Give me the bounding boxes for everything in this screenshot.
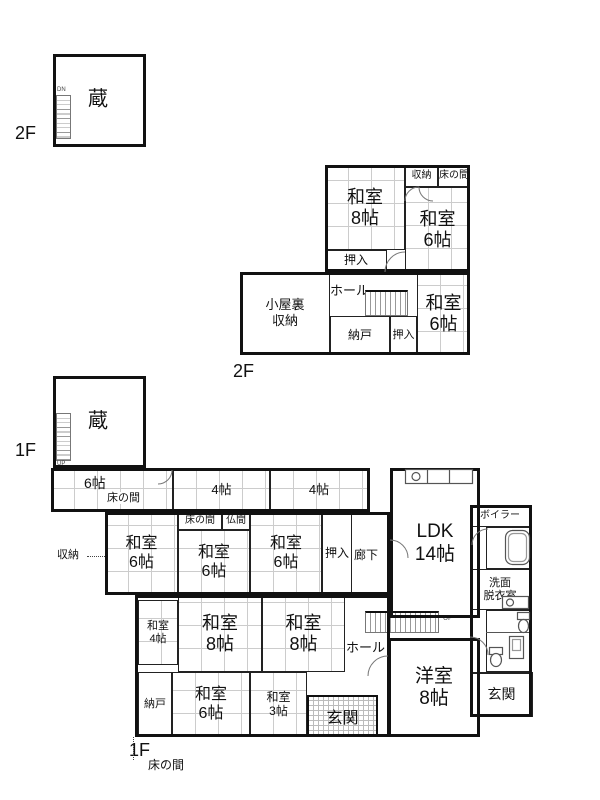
room-2f-oshiire-bottom: 押入 <box>390 316 417 355</box>
room-1f-tokonoma-mid: 床の間 <box>178 512 222 530</box>
label-2f-hall: ホール <box>330 284 369 298</box>
room-2f-tokonoma: 床の間 <box>438 165 470 187</box>
room-1f-genkan-side: 玄関 <box>470 672 533 717</box>
room-1f-yoshitsu-8: 洋室 8帖 <box>388 638 480 737</box>
room-2f-washitsu-8: 和室 8帖 <box>325 165 405 250</box>
room-1f-washitsu-6-a: 和室 6帖 <box>105 512 178 595</box>
1f-stairs <box>365 611 439 633</box>
label-1f-shuno: 収納 <box>57 549 79 561</box>
room-2f-washitsu-6-top: 和室 6帖 <box>405 187 470 272</box>
door-arc <box>368 656 388 676</box>
room-1f-4jo-b: 4帖 <box>270 468 368 512</box>
room-1f-oshiire: 押入 <box>322 512 352 595</box>
label-1f-rouka: 廊下 <box>354 549 378 562</box>
room-1f-senmen: 洗面 脱衣室 <box>470 569 530 610</box>
room-1f-butsuma: 仏間 <box>222 512 250 530</box>
room-1f-washitsu-6-b: 和室 6帖 <box>178 530 250 595</box>
floor-label-1f-side: 1F <box>15 441 36 461</box>
room-1f-genkan-main: 玄関 <box>307 695 378 737</box>
toilet-divider <box>486 632 530 633</box>
room-1f-washitsu-8-a: 和室 8帖 <box>178 595 262 672</box>
label-1f-stair-dir: UP <box>443 615 453 623</box>
room-1f-nando: 納戸 <box>138 672 172 737</box>
leader-shuno <box>87 556 105 557</box>
leader-tokonoma-bottom <box>133 737 134 760</box>
1f-storage-stairs <box>56 413 71 461</box>
1f-storage-room-label: 蔵 <box>88 410 108 432</box>
room-2f-oshiire-top: 押入 <box>325 250 387 272</box>
room-1f-ldk: LDK 14帖 <box>390 468 480 618</box>
2f-storage-room-label: 蔵 <box>88 88 108 110</box>
room-1f-4jo-a: 4帖 <box>173 468 270 512</box>
room-1f-washitsu-8-b: 和室 8帖 <box>262 595 345 672</box>
room-1f-washitsu-3: 和室 3帖 <box>250 672 307 737</box>
room-1f-boiler: ボイラー <box>470 505 530 527</box>
room-2f-koyaura-shuno: 小屋裏 収納 <box>240 272 330 355</box>
label-1f-6jo: 6帖 <box>84 476 106 491</box>
label-1f-tokonoma-bottom: 床の間 <box>148 759 184 772</box>
room-2f-shuno: 収納 <box>405 165 438 187</box>
room-1f-washitsu-6-d: 和室 6帖 <box>172 672 250 737</box>
2f-storage-stairs <box>56 95 71 139</box>
floor-plan-canvas: DN 蔵 2F 和室 8帖 収納 床の間 和室 6帖 押入 小屋裏 収納 ホール… <box>0 0 600 800</box>
label-1f-tokonoma-top: 床の間 <box>106 492 141 504</box>
room-2f-washitsu-6-bottom: 和室 6帖 <box>417 272 470 355</box>
floor-label-2f-side: 2F <box>15 124 36 144</box>
room-1f-6jo <box>51 468 173 512</box>
room-1f-washitsu-6-c: 和室 6帖 <box>250 512 322 595</box>
room-1f-bath <box>486 527 530 569</box>
room-1f-toilet <box>486 610 530 672</box>
floor-label-2f-bottom: 2F <box>233 362 254 382</box>
room-2f-nando: 納戸 <box>330 316 390 355</box>
label-1f-hall: ホール <box>346 641 385 655</box>
door-arc <box>385 252 405 272</box>
1f-storage-stair-label: UP <box>57 461 65 468</box>
room-1f-washitsu-4: 和室 4帖 <box>138 600 178 665</box>
2f-storage-stair-label: DN <box>57 87 66 94</box>
2f-stairs <box>365 290 408 316</box>
